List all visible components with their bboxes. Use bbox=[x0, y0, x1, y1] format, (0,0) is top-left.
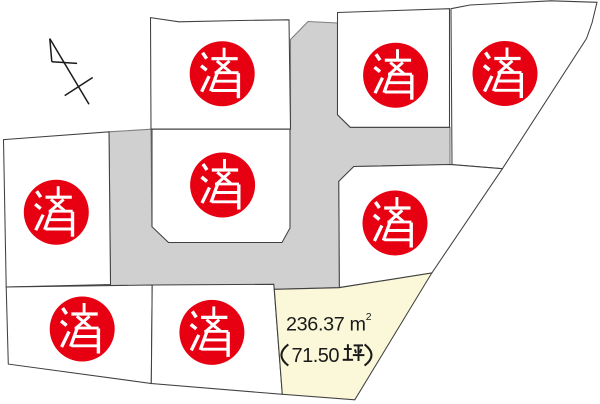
svg-text:71.50: 71.50 bbox=[292, 345, 340, 367]
svg-text:236.37 m2: 236.37 m2 bbox=[286, 311, 372, 335]
